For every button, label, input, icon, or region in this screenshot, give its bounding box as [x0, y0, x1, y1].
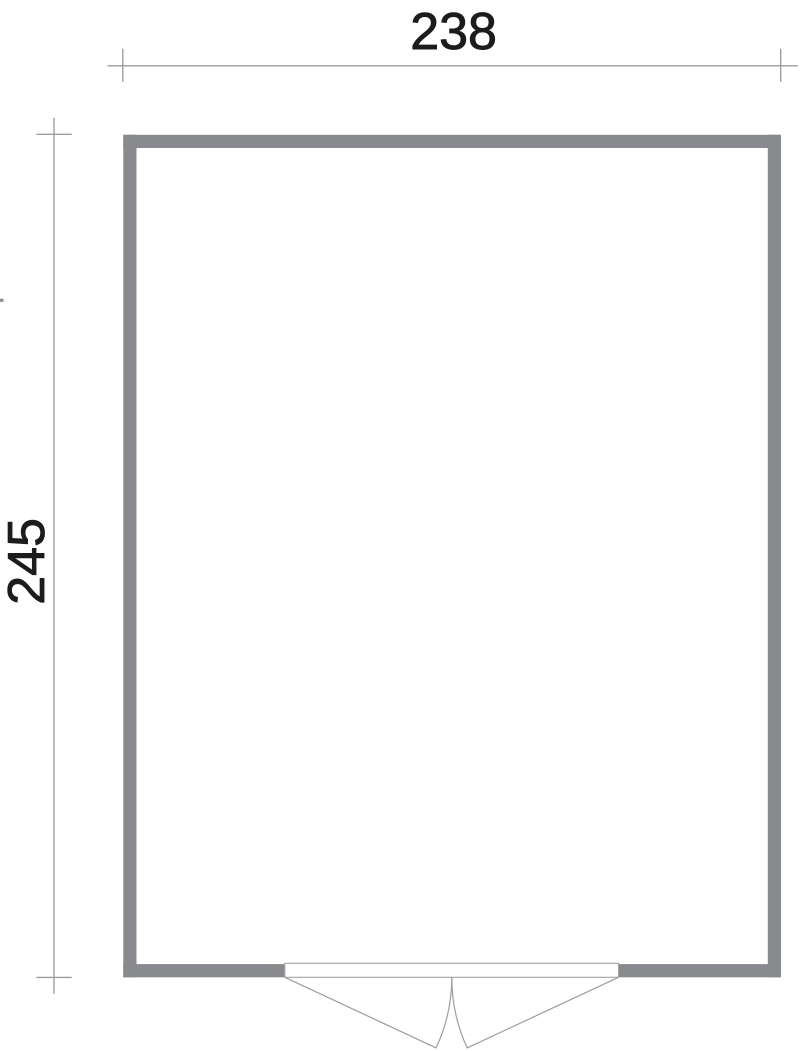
svg-text:245: 245: [0, 518, 56, 605]
svg-text:238: 238: [410, 3, 497, 61]
